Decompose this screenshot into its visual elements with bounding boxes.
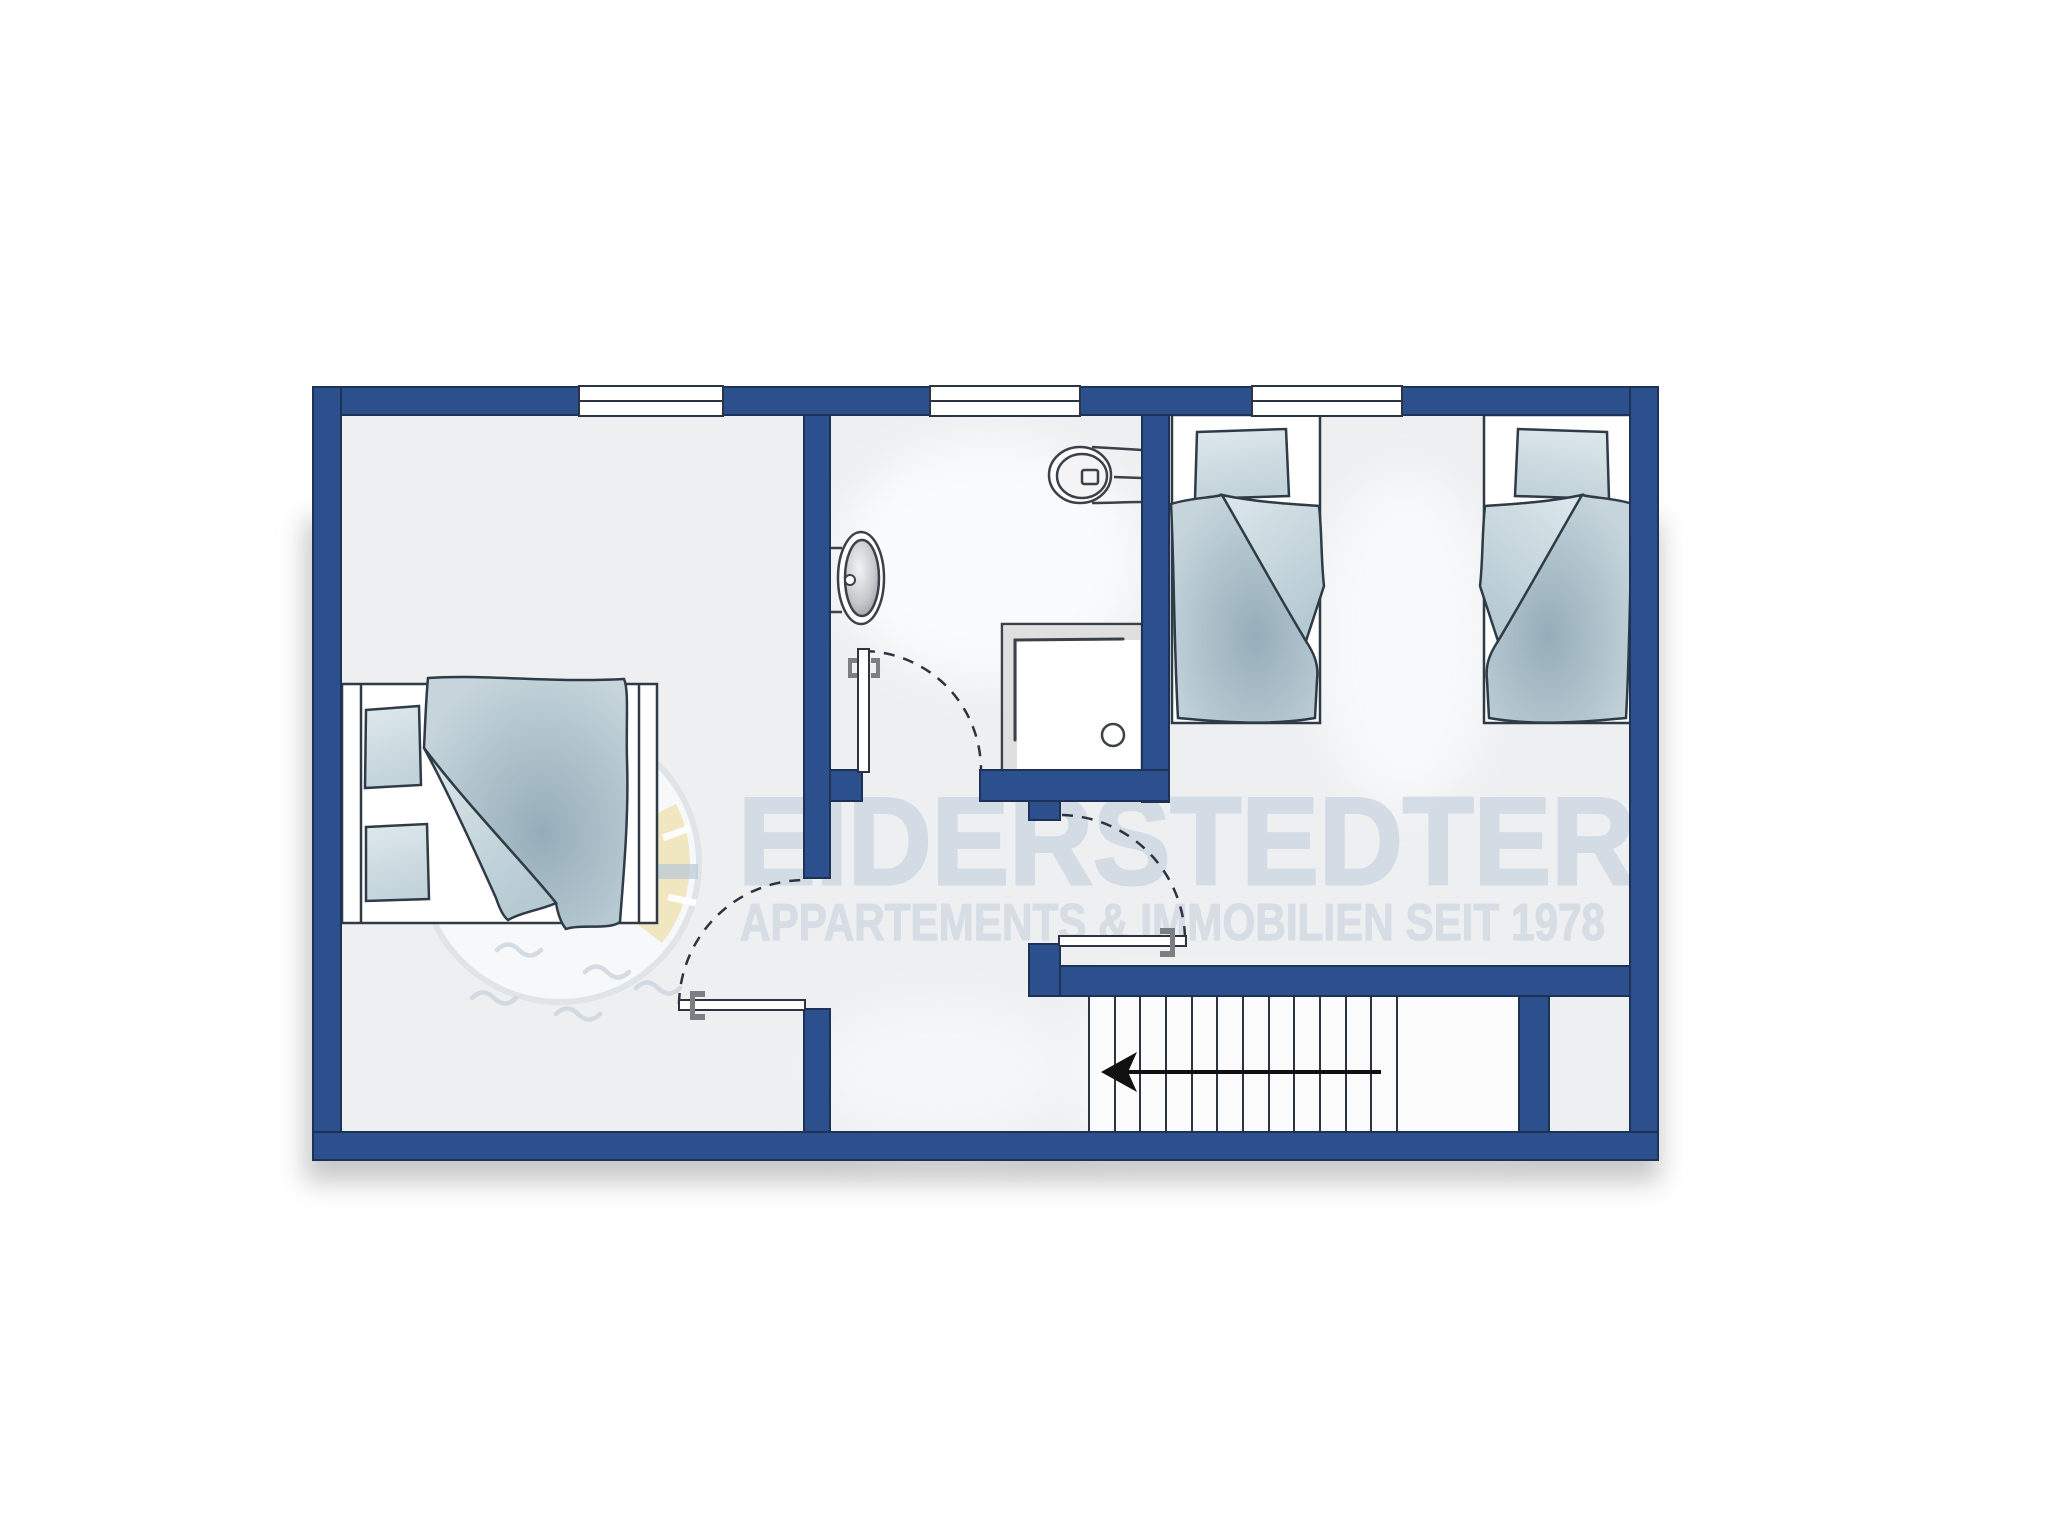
- svg-text:EIDERSTEDTER: EIDERSTEDTER: [738, 773, 1635, 911]
